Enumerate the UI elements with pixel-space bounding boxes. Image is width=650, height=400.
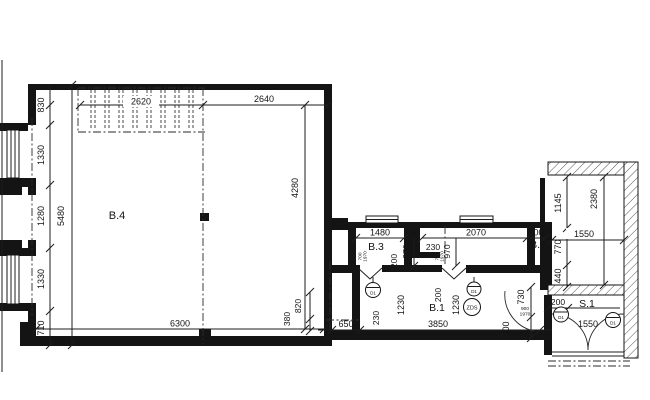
wall-mid-top-step <box>332 218 348 230</box>
dim-1330-top: 1330 <box>36 145 46 165</box>
dim-970-b3: 970 <box>401 244 411 258</box>
dim-1280: 1280 <box>36 206 46 226</box>
room-label-b1: B.1 <box>429 302 445 314</box>
door-b2-height: 1970 <box>440 251 446 262</box>
dim-2640: 2640 <box>254 94 274 104</box>
room-label-b2: B.2 <box>530 239 546 251</box>
wall-b1-bottom <box>332 330 552 340</box>
door-tag-s1-right-text: D1 <box>610 321 616 326</box>
dim-1145: 1145 <box>553 193 563 212</box>
dim-710: 710 <box>36 320 46 335</box>
dim-2380: 2380 <box>589 189 599 209</box>
wall-b4-right <box>324 84 332 346</box>
dim-1230-left: 1230 <box>396 295 406 315</box>
dim-1550-s1: 1550 <box>578 319 598 329</box>
door-swing-b2 <box>442 268 466 279</box>
dim-500-b2: 500 <box>528 228 543 238</box>
wall-niche-bottom-stub <box>0 240 22 248</box>
dim-1480: 1480 <box>370 228 390 238</box>
door-tag-mid-text: D1 <box>471 289 477 294</box>
wall-niche-top-stub <box>0 187 22 195</box>
hatched-wall-right <box>624 162 638 358</box>
dim-200-b1: 200 <box>433 288 443 302</box>
hatched-wall-mid <box>548 285 624 295</box>
dim-4280: 4280 <box>290 178 300 198</box>
axis-lines <box>2 60 630 372</box>
wall-rightsec-left-upper <box>540 178 545 222</box>
ladder-grid <box>78 88 205 132</box>
dim-650: 650 <box>338 319 353 329</box>
wall-b4-bottom <box>20 336 332 346</box>
dim-230-b1: 230 <box>371 311 381 325</box>
column-mid <box>200 213 209 221</box>
window-bay2 <box>7 255 19 304</box>
zds-tag-text: ZDS <box>467 306 478 312</box>
floor-plan-drawing: B.4 B.3 B.1 B.2 S.1 2620 2640 1480 2070 … <box>0 0 650 400</box>
dim-500-door: 500 <box>501 321 511 336</box>
dim-6300: 6300 <box>170 319 190 329</box>
room-label-s1: S.1 <box>579 298 595 310</box>
dim-1550-top: 1550 <box>574 229 594 239</box>
door-s1-width: 900 <box>521 306 529 312</box>
room-label-b4: B.4 <box>109 210 126 222</box>
door-tag-s1-left-text: D1 <box>558 315 564 320</box>
dim-200-b3: 200 <box>389 254 399 268</box>
door-swing-b3 <box>358 268 382 279</box>
wall-mid-top <box>332 222 540 228</box>
wall-bay1-bottom-stub <box>0 178 28 187</box>
dim-2620: 2620 <box>131 97 151 107</box>
floor-plan-canvas: B.4 B.3 B.1 B.2 S.1 2620 2640 1480 2070 … <box>0 0 650 400</box>
window-bay1 <box>7 130 19 178</box>
dim-1330-bottom: 1330 <box>36 269 46 289</box>
dim-200-s1: 200 <box>551 297 565 307</box>
door-tag-left-text: D1 <box>370 291 376 296</box>
dim-820: 820 <box>293 299 303 313</box>
door-s1-height: 1970 <box>520 312 531 318</box>
wall-b4-top <box>28 84 332 90</box>
column-bottom <box>199 329 211 337</box>
dim-830: 830 <box>36 97 46 112</box>
dim-770: 770 <box>553 239 563 254</box>
wall-b1-connector <box>324 265 360 273</box>
windows <box>7 130 493 304</box>
door-b3-height: 1970 <box>363 251 369 262</box>
dim-2070: 2070 <box>466 228 486 238</box>
dim-440: 440 <box>553 268 563 283</box>
room-label-b3: B.3 <box>368 241 384 253</box>
dim-230-stub: 230 <box>426 242 440 252</box>
dim-3850: 3850 <box>428 319 448 329</box>
dim-380: 380 <box>282 312 292 326</box>
wall-corner-step <box>20 322 28 346</box>
dim-5480: 5480 <box>56 206 66 226</box>
dim-1230-right: 1230 <box>451 295 461 315</box>
dim-730: 730 <box>516 289 526 304</box>
wall-b3-left <box>348 222 356 272</box>
